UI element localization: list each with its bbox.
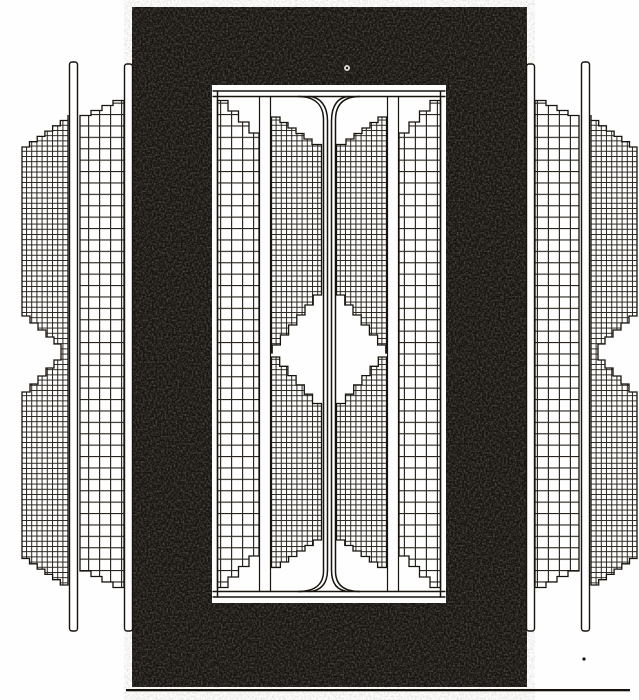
figure-page [0, 0, 639, 700]
baseline-rule [126, 689, 630, 691]
ink-speck [582, 657, 585, 660]
magnetic-core [132, 7, 527, 687]
clamp-bar-outer-left [70, 62, 78, 631]
clamp-bar-core-left [125, 64, 133, 631]
inner-winding-coarse-left [218, 101, 260, 588]
core-pinhole-center [346, 67, 348, 69]
outer-winding-coarse-left [80, 101, 124, 588]
transformer-cross-section-figure [0, 0, 639, 700]
